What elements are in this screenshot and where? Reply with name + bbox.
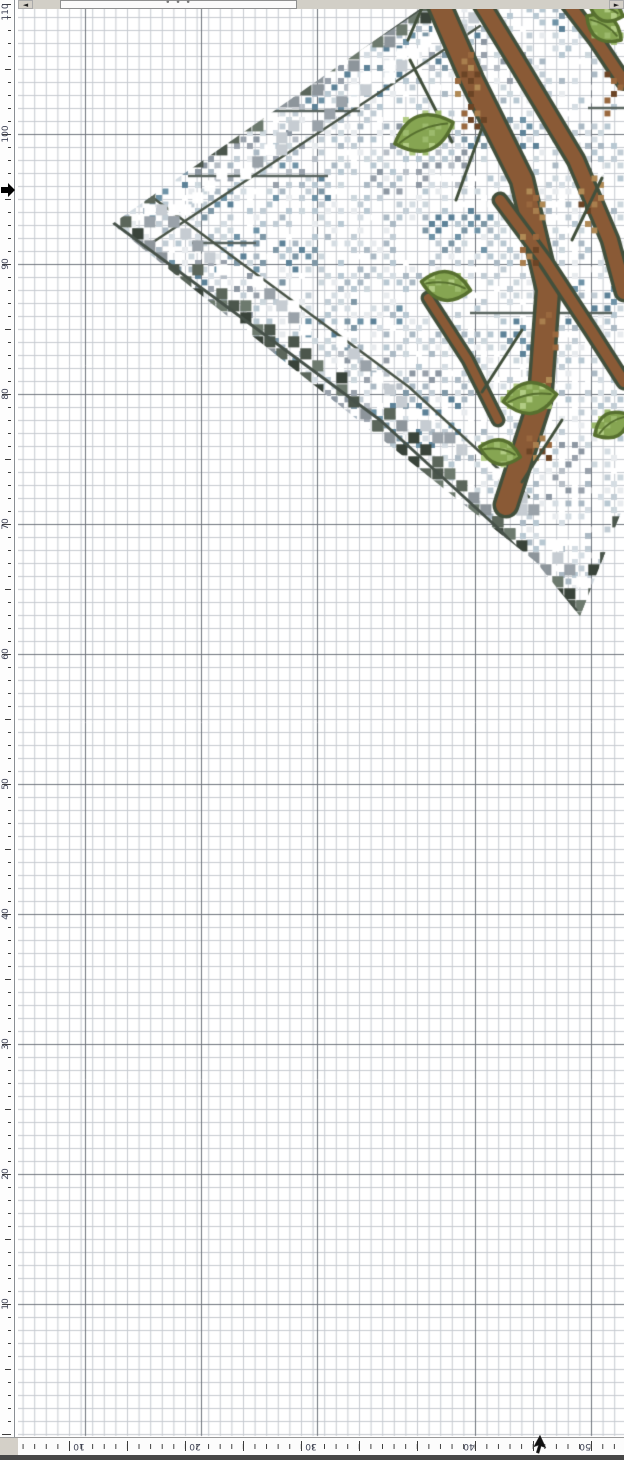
bottom-ruler-label: 30 [300, 1440, 322, 1452]
left-ruler-label: 40 [0, 904, 12, 924]
left-ruler-label: 100 [0, 124, 12, 144]
bottom-ruler-label: 10 [68, 1440, 90, 1452]
left-ruler-label: 50 [0, 774, 12, 794]
horizontal-scrollbar[interactable]: ◄ • • • ► [18, 0, 624, 9]
scroll-right-button[interactable]: ► [609, 0, 624, 9]
ruler-divider [13, 0, 18, 1437]
left-ruler-label: 110 [0, 2, 12, 22]
mouse-cursor-icon [531, 1435, 547, 1454]
pattern-viewer-window: ◄ • • • ► 110100908070605040302010 vagil… [0, 0, 624, 1460]
left-ruler-label: 20 [0, 1164, 12, 1184]
left-ruler-label: 10 [0, 1294, 12, 1314]
left-ruler-label: 30 [0, 1034, 12, 1054]
left-ruler: 110100908070605040302010 [0, 0, 13, 1437]
left-ruler-label: 60 [0, 644, 12, 664]
left-ruler-label: 70 [0, 514, 12, 534]
scrollbar-thumb[interactable]: • • • [60, 0, 297, 9]
bottom-ruler-label: 20 [184, 1440, 206, 1452]
scroll-left-button[interactable]: ◄ [18, 0, 33, 9]
pattern-canvas[interactable] [0, 0, 624, 1460]
window-bottom-edge [0, 1455, 624, 1460]
bottom-ruler-label: 40 [458, 1440, 480, 1452]
bottom-ruler-label: 50 [574, 1440, 596, 1452]
row-position-marker-icon[interactable] [1, 182, 17, 198]
left-ruler-label: 80 [0, 384, 12, 404]
ruler-corner [0, 1437, 18, 1455]
left-ruler-label: 90 [0, 254, 12, 274]
